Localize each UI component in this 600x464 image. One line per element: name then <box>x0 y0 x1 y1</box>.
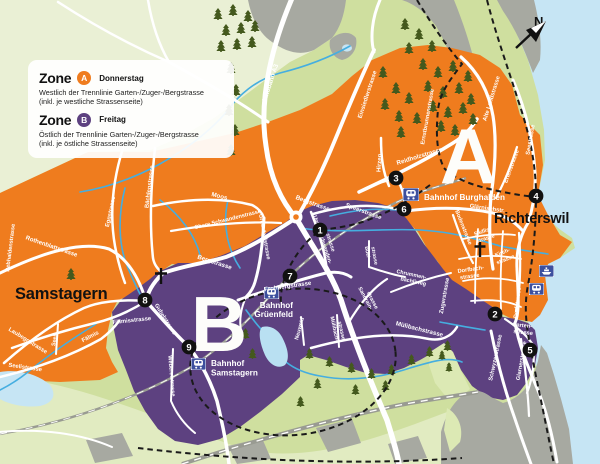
train-station-icon <box>191 358 206 370</box>
legend-zone-b-day: Freitag <box>99 115 126 124</box>
map-marker-2: 2 <box>488 307 503 322</box>
svg-text:4: 4 <box>533 191 539 202</box>
zone-a-badge-icon: A <box>77 71 91 85</box>
train-station-icon <box>529 283 544 295</box>
svg-text:3: 3 <box>393 173 398 184</box>
svg-text:6: 6 <box>401 204 406 215</box>
legend-zone-a-desc-line2: (inkl. je westliche Strassenseite) <box>39 97 143 106</box>
roundabout <box>290 211 303 224</box>
town-label-samstagern: Samstagern <box>15 285 108 303</box>
zone-b-big-letter: B <box>191 280 247 368</box>
legend-zone-a-word: Zone <box>39 70 71 86</box>
zone-map: A B Bahnhof Burghalden Bahnhof Grüenfeld… <box>0 0 600 464</box>
svg-text:7: 7 <box>287 271 292 282</box>
train-station-icon <box>403 188 419 201</box>
station-label-grueenfeld-1: Bahnhof <box>260 301 293 310</box>
map-marker-4: 4 <box>529 189 544 204</box>
legend-zone-b-word: Zone <box>39 112 71 128</box>
map-marker-9: 9 <box>182 340 197 355</box>
map-marker-6: 6 <box>397 202 412 217</box>
legend-zone-b-desc-line2: (inkl. je östliche Strassenseite) <box>39 139 138 148</box>
town-label-richterswil: Richterswil <box>494 211 569 227</box>
legend-zone-b-description: Östlich der Trennlinie Garten-/Zuger-/Be… <box>39 130 223 149</box>
svg-text:9: 9 <box>186 342 191 353</box>
ship-pier-icon <box>539 265 554 277</box>
station-label-grueenfeld-2: Grüenfeld <box>254 310 293 319</box>
svg-text:8: 8 <box>142 295 147 306</box>
svg-text:5: 5 <box>527 345 533 356</box>
legend-zone-b-desc-line1: Östlich der Trennlinie Garten-/Zuger-/Be… <box>39 130 199 139</box>
legend-zone-a-description: Westlich der Trennlinie Garten-/Zuger-/B… <box>39 88 223 107</box>
map-marker-3: 3 <box>389 171 404 186</box>
map-marker-1: 1 <box>313 223 328 238</box>
svg-text:1: 1 <box>317 225 323 236</box>
zone-a-big-letter: A <box>440 112 496 200</box>
legend-zone-a-row: Zone A Donnerstag <box>39 70 223 86</box>
legend-zone-a-day: Donnerstag <box>99 74 143 83</box>
station-label-burghalden: Bahnhof Burghalden <box>424 193 505 202</box>
map-marker-7: 7 <box>283 269 298 284</box>
legend-zone-b-row: Zone B Freitag <box>39 112 223 128</box>
zone-b-badge-icon: B <box>77 113 91 127</box>
station-label-samstagern-1: Bahnhof <box>211 359 244 368</box>
svg-text:2: 2 <box>492 309 497 320</box>
legend-zone-a-desc-line1: Westlich der Trennlinie Garten-/Zuger-/B… <box>39 88 204 97</box>
legend-panel: Zone A Donnerstag Westlich der Trennlini… <box>28 60 234 158</box>
map-marker-5: 5 <box>523 343 538 358</box>
map-marker-8: 8 <box>138 293 153 308</box>
station-label-samstagern-2: Samstagern <box>211 369 258 378</box>
